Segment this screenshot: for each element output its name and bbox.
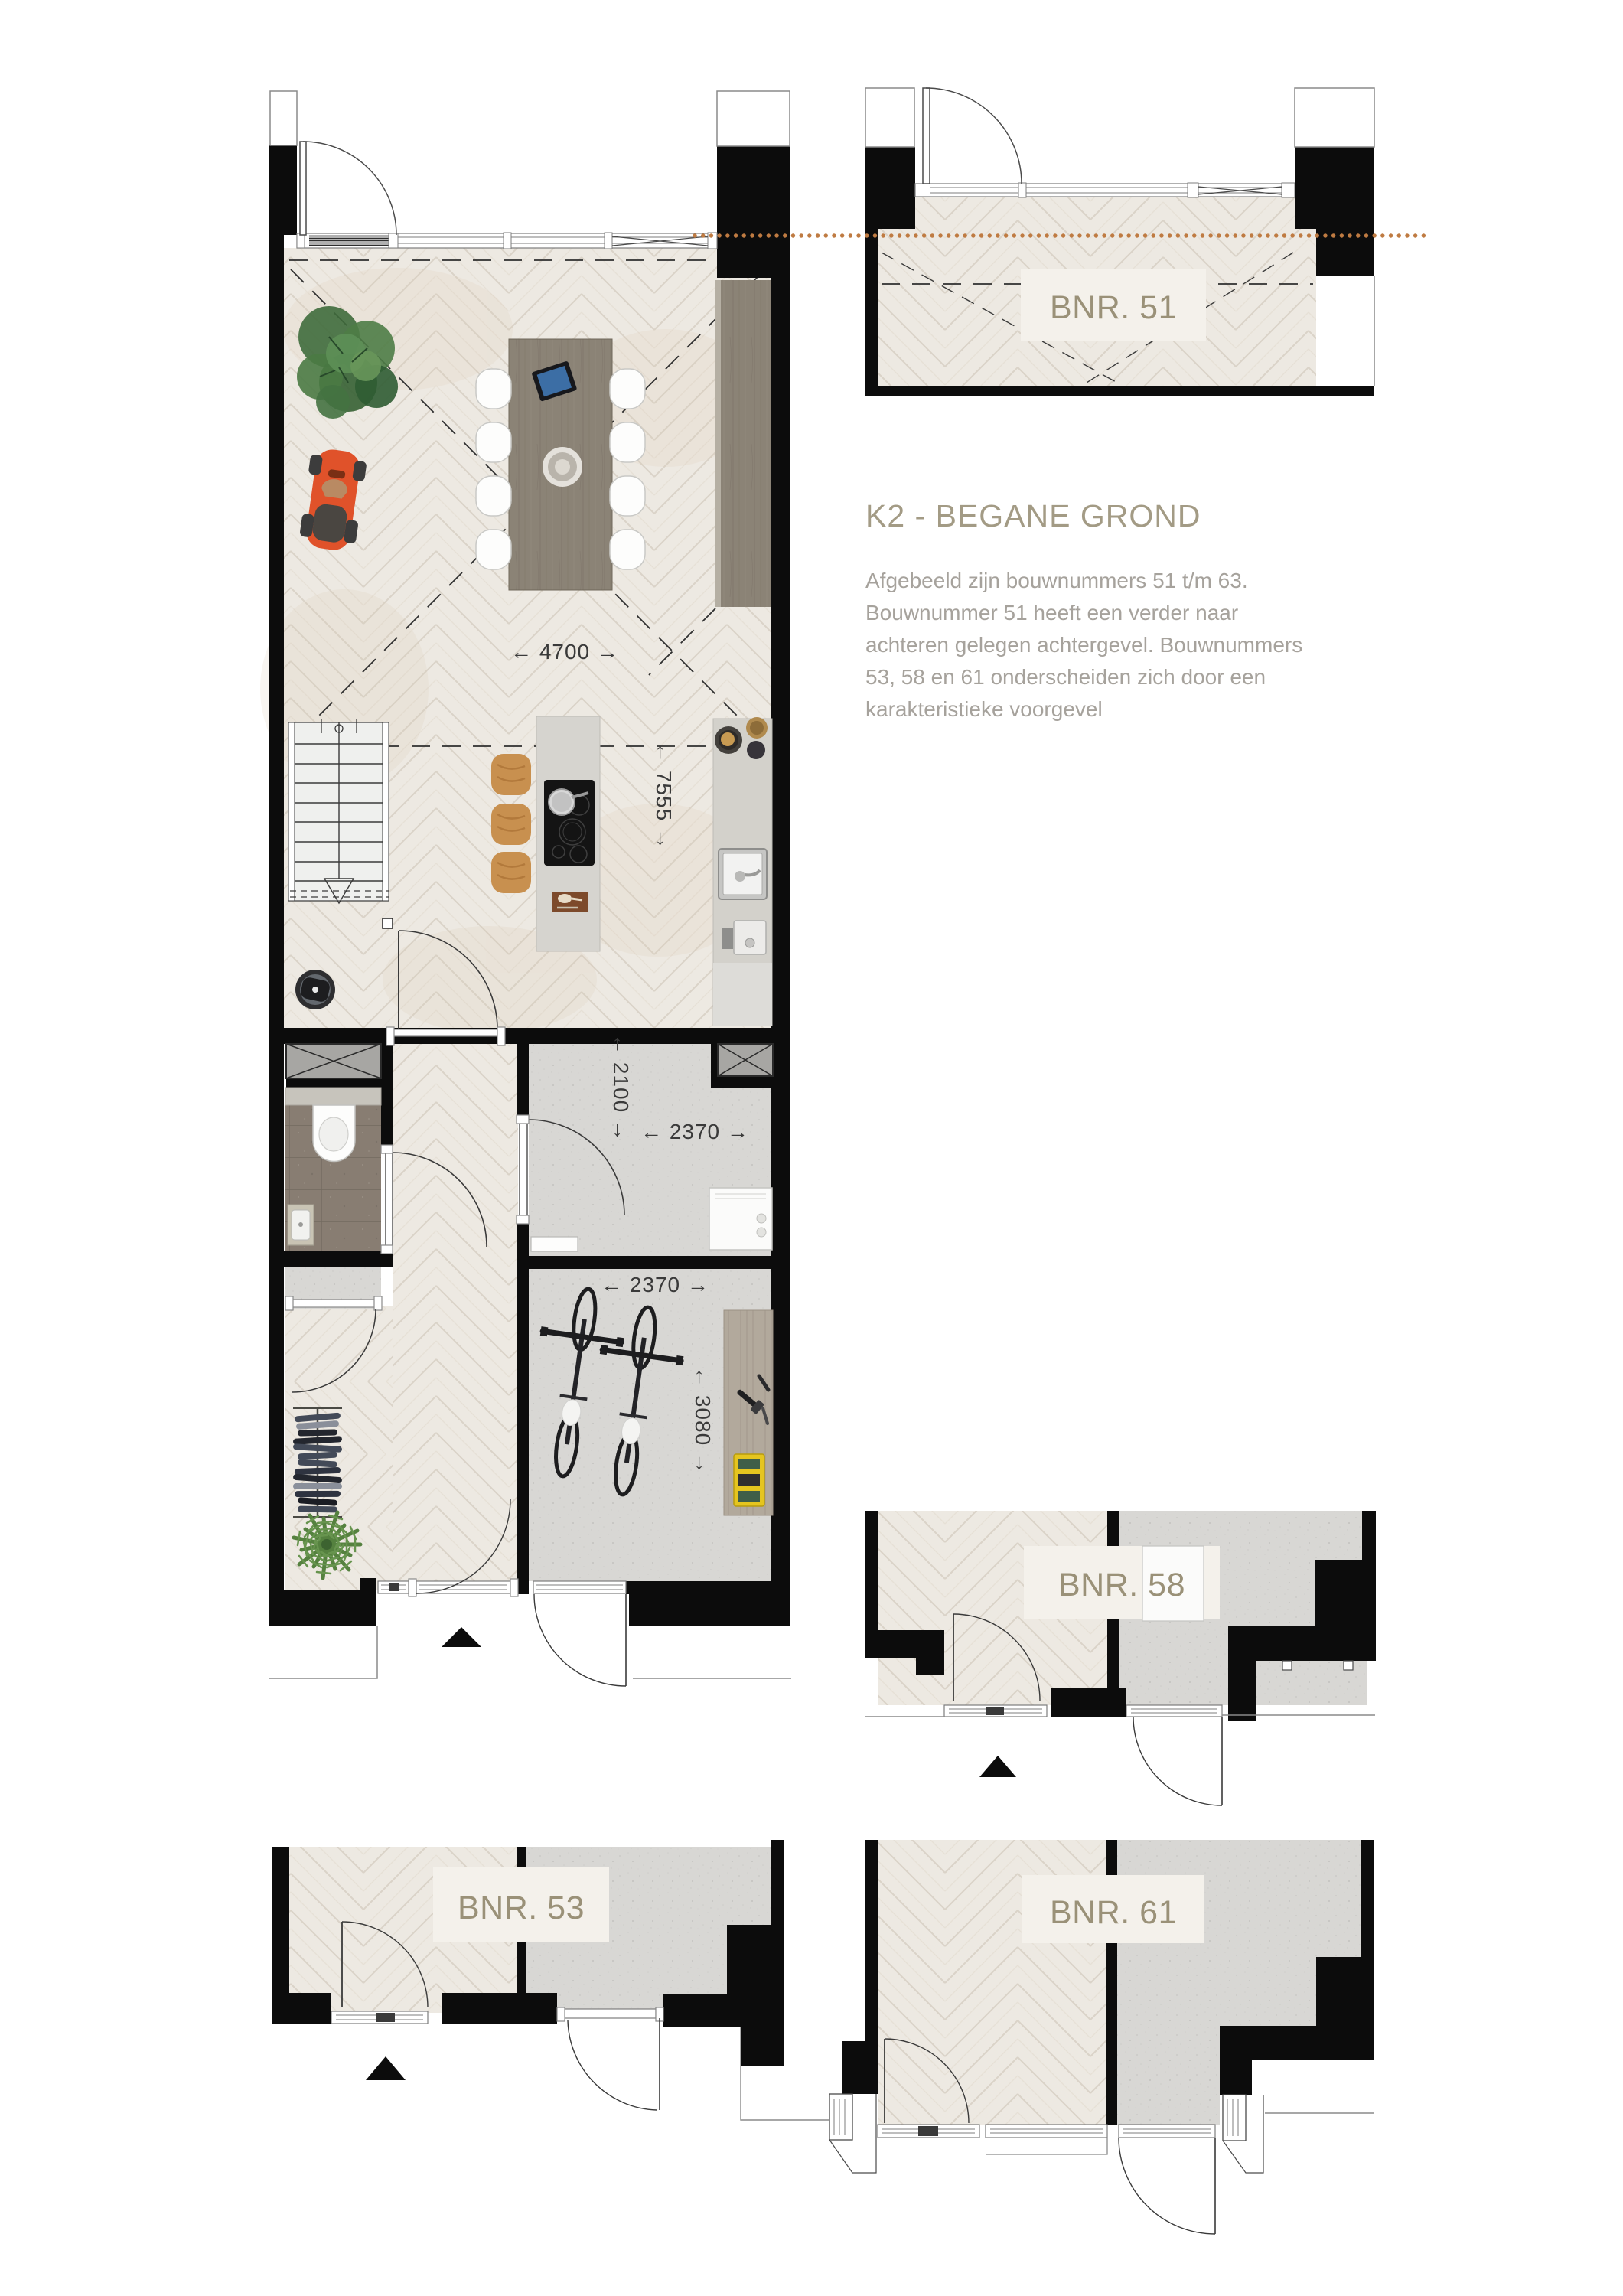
svg-text:achteren gelegen achtergevel.: achteren gelegen achtergevel. Bouwnummer…	[865, 633, 1302, 657]
svg-text:BNR. 51: BNR. 51	[1050, 289, 1177, 326]
svg-text:karakteristieke voorgevel: karakteristieke voorgevel	[865, 697, 1103, 721]
svg-text:← 2100 →: ← 2100 →	[609, 1033, 633, 1142]
svg-text:Afgebeeld zijn bouwnummers 51: Afgebeeld zijn bouwnummers 51 t/m 63.	[865, 569, 1248, 592]
svg-text:BNR. 53: BNR. 53	[458, 1890, 585, 1926]
svg-text:BNR. 61: BNR. 61	[1050, 1894, 1177, 1931]
svg-text:53, 58 en 61 onderscheiden zic: 53, 58 en 61 onderscheiden zich door een	[865, 665, 1266, 689]
svg-text:← 7555 →: ← 7555 →	[652, 742, 676, 850]
svg-text:← 3080 →: ← 3080 →	[691, 1366, 715, 1475]
svg-text:← 2370 →: ← 2370 →	[640, 1120, 749, 1143]
svg-text:BNR. 58: BNR. 58	[1058, 1567, 1185, 1603]
svg-text:← 4700 →: ← 4700 →	[510, 640, 619, 664]
svg-text:K2 - BEGANE GROND: K2 - BEGANE GROND	[865, 498, 1201, 533]
svg-text:← 2370 →: ← 2370 →	[601, 1273, 709, 1296]
svg-text:Bouwnummer 51 heeft een verder: Bouwnummer 51 heeft een verder naar	[865, 601, 1238, 625]
